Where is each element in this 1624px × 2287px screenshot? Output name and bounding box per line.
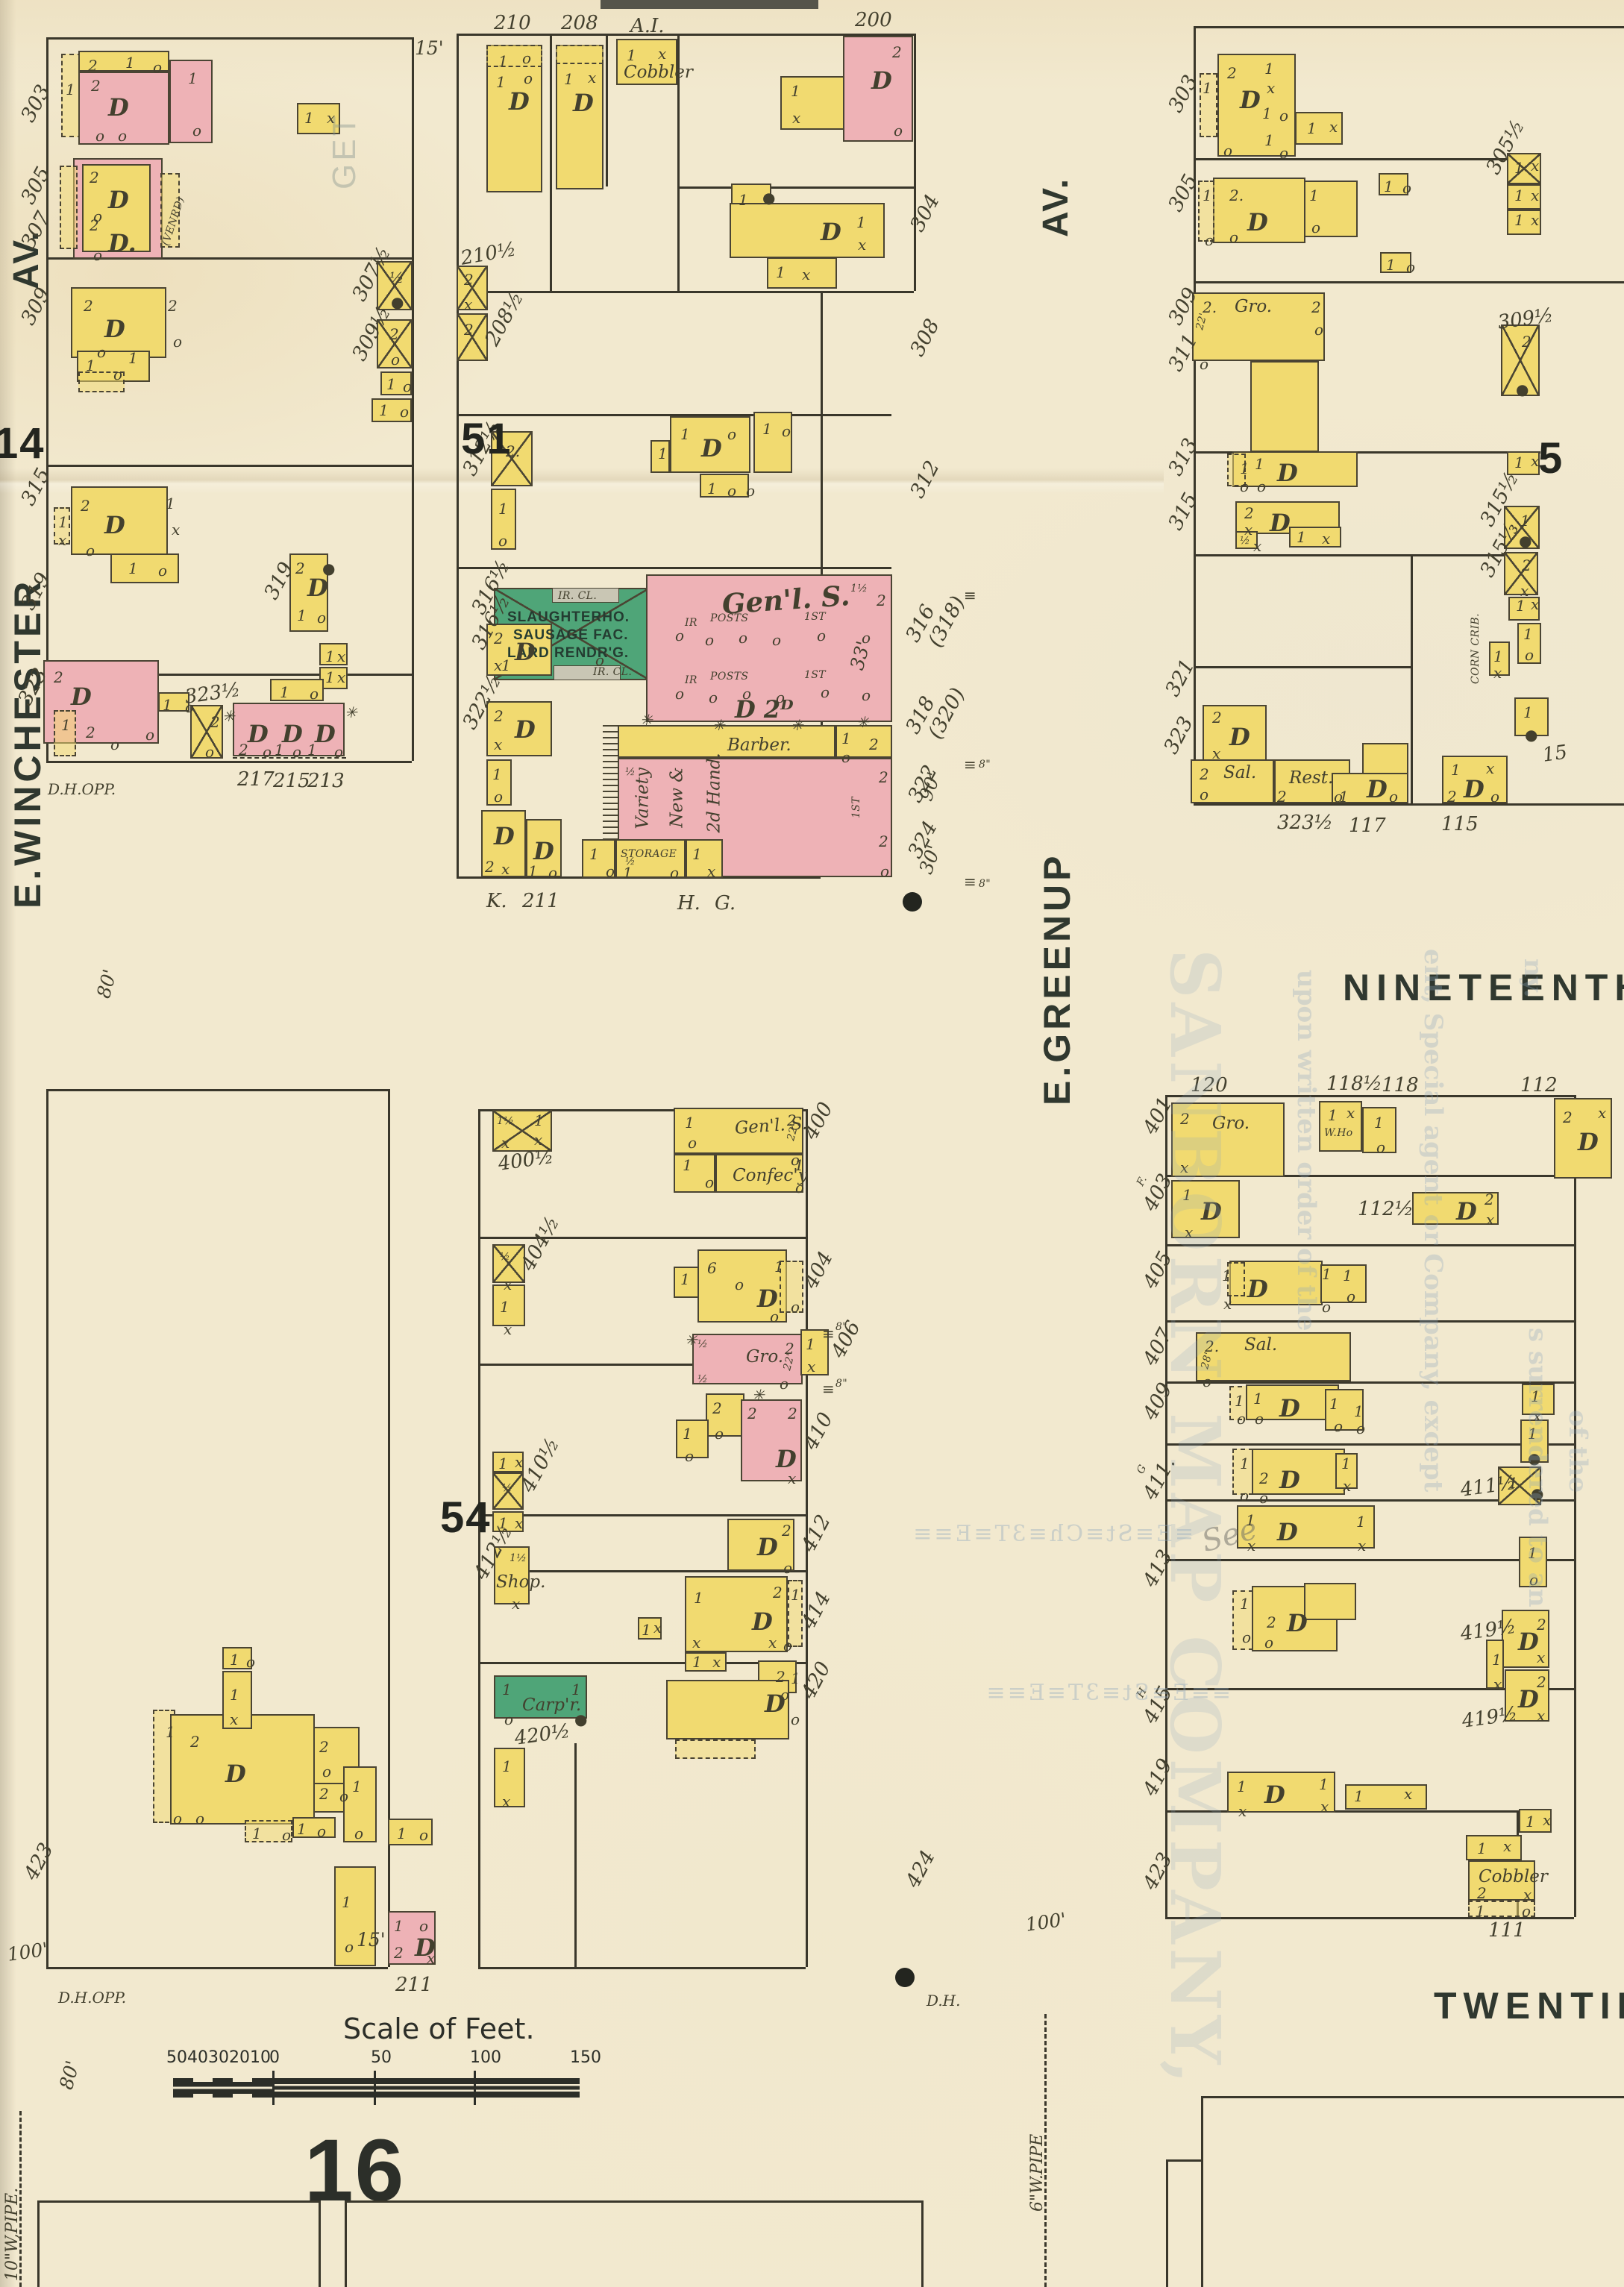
map-label-m: o <box>1257 479 1266 494</box>
map-label-m: o <box>192 123 201 138</box>
map-label-m: 1 <box>692 1654 702 1669</box>
map-label-m: 1 <box>1477 1841 1487 1856</box>
map-label-m: o <box>841 750 850 765</box>
map-label-m: x <box>768 1635 777 1650</box>
map-label-m: 1 <box>1514 455 1524 470</box>
map-label-m: 1 <box>776 265 786 280</box>
map-label-sn: 208½ <box>482 289 527 349</box>
watermark-text: of the <box>1565 1410 1590 1493</box>
map-label-t: G <box>1135 1463 1149 1475</box>
map-label-m: 1 <box>297 1822 307 1836</box>
map-label-use: Cobbler <box>1479 1869 1548 1886</box>
map-label-m: 2 <box>88 58 98 73</box>
map-label-m: 1 <box>534 1113 544 1128</box>
map-label-m: o <box>715 1426 724 1441</box>
map-label-m: o <box>595 653 604 668</box>
map-label-m: o <box>322 1764 331 1779</box>
map-label-m: 2 <box>84 298 93 313</box>
map-label-m: o <box>263 744 272 759</box>
map-label-m: x <box>504 1322 512 1337</box>
map-label-use: Gro. <box>746 1349 783 1366</box>
map-label-m: 1 <box>1492 1652 1502 1667</box>
map-label-m: o <box>688 1135 697 1150</box>
map-label-sn: 311 <box>1165 331 1201 374</box>
map-label-snh: G. <box>715 894 736 913</box>
map-label-m: 1 <box>1240 1596 1250 1611</box>
map-label-m: 2 <box>1259 1471 1269 1486</box>
map-label-t: 1½ <box>850 583 868 594</box>
map-label-m: 1 <box>61 718 71 732</box>
watermark-text: SANBORN MAP COMPANY, <box>1161 949 1229 2089</box>
map-label-m: o <box>1406 260 1415 274</box>
map-label-m: o <box>821 685 830 700</box>
map-label-m: 2 <box>90 218 99 233</box>
block-number: 51 <box>461 418 512 461</box>
map-label-m: 1 <box>623 865 633 880</box>
map-label-m: ● <box>574 1712 587 1727</box>
map-label-m: 1 <box>680 427 690 442</box>
map-label-m: 2 <box>168 298 178 313</box>
map-label-m: 1 <box>397 1826 407 1841</box>
lot-line <box>1194 554 1507 556</box>
map-label-m: 1 <box>685 1115 695 1130</box>
lot-line <box>1194 26 1196 803</box>
map-label-d: D <box>1240 88 1261 112</box>
map-label-m: 2 <box>54 670 63 685</box>
map-label-m: o <box>205 744 214 759</box>
map-label-m: o <box>1259 1490 1268 1505</box>
map-label-d: D <box>573 91 594 115</box>
map-label-m: 1 <box>498 54 508 69</box>
scale-tick: 150 <box>570 2048 601 2067</box>
map-label-t: 1ST <box>804 670 826 680</box>
map-label-m: 1 <box>1329 1396 1339 1411</box>
map-label-sn: 305 <box>1165 172 1201 215</box>
map-label-m: ✳ <box>685 1332 697 1347</box>
lot-line <box>921 2200 924 2287</box>
map-label-use: Rest. <box>1289 770 1333 787</box>
block-number: 5 <box>1538 437 1564 480</box>
map-label-m: 1 <box>642 1622 651 1637</box>
map-label-snh: 200 <box>855 10 892 30</box>
watermark-text: ≡≡E≡St≡3T≡E≡≡ <box>985 1682 1231 1704</box>
map-label-m: x <box>1520 583 1529 598</box>
map-label-m: o <box>1229 230 1238 245</box>
map-label-m: 6 <box>707 1261 717 1276</box>
map-label-use: Barber. <box>727 737 791 754</box>
map-label-m: o <box>1490 789 1499 804</box>
map-label-t: POSTS <box>710 613 748 624</box>
map-label-m: o <box>739 630 747 645</box>
map-label-m: x <box>1320 1799 1329 1814</box>
map-label-snh: 309½ <box>1496 306 1555 333</box>
map-label-use: Carp'r. <box>522 1697 581 1714</box>
water-pipe-10in-label: 10"W,PIPE. <box>3 2188 22 2281</box>
map-label-sn: 304 <box>907 192 943 235</box>
map-label-m: 1 <box>683 1426 692 1441</box>
map-label-m: o <box>705 633 714 647</box>
map-label-m: D.H. <box>927 1993 960 2008</box>
map-label-m: 2 <box>1485 1192 1494 1207</box>
lot-line <box>677 186 914 189</box>
map-label-m: 2 <box>1267 1615 1276 1630</box>
lot-line <box>914 34 916 291</box>
map-label-m: o <box>770 1309 779 1324</box>
map-label-t: IR. CL. <box>558 591 597 601</box>
map-label-m: 1 <box>492 767 502 782</box>
map-label-m: o <box>113 367 122 382</box>
watermark-text: s surrendered to an <box>1525 1328 1550 1607</box>
map-label-d: D <box>1277 1520 1298 1544</box>
map-label-d: D <box>515 718 536 741</box>
map-label-m: o <box>345 1939 354 1954</box>
map-label-dim: 15' <box>357 1930 386 1949</box>
map-label-dim: 100' <box>6 1940 49 1964</box>
map-label-m: 1 <box>304 110 314 125</box>
map-label-sn: 309 <box>18 285 54 328</box>
map-label-sn: 307 <box>18 209 54 252</box>
map-label-m: 1 <box>806 1337 815 1352</box>
map-label-m: 1 <box>1343 1268 1352 1283</box>
map-label-m: o <box>391 352 400 367</box>
map-label-dim: 80' <box>94 967 119 1000</box>
map-label-m: 1 <box>1354 1789 1364 1804</box>
map-label-d: D <box>1578 1130 1599 1154</box>
map-label-m: x <box>1486 761 1494 776</box>
map-label-m: o <box>419 1919 428 1933</box>
map-label-m: 1 <box>1384 179 1393 194</box>
street-label-twentieth: TWENTIETH <box>1434 1984 1624 2027</box>
map-label-m: 2 <box>91 78 101 93</box>
map-label-m: o <box>1205 233 1214 248</box>
map-label-m: 1 <box>1240 461 1250 476</box>
scale-tick: 10 <box>250 2048 271 2067</box>
map-label-m: ✳ <box>791 718 803 732</box>
map-label-sn: 423 <box>21 1840 57 1883</box>
map-label-m: 1 <box>1237 1779 1247 1794</box>
map-label-m: 1 <box>707 481 717 496</box>
map-label-m: 2 <box>90 170 99 185</box>
map-label-m: o <box>1402 181 1411 195</box>
map-label-sn: 400 <box>800 1099 836 1143</box>
map-label-m: x <box>501 1135 510 1150</box>
map-label-m: x <box>427 1951 435 1966</box>
block-number: 14 <box>0 422 46 465</box>
map-label-snh: 211 <box>395 1975 433 1995</box>
map-label-use: Sal. <box>1223 765 1256 782</box>
map-label-sn: 303 <box>18 82 54 125</box>
hydrant-dot <box>895 1968 915 1987</box>
map-label-m: x <box>658 46 666 61</box>
map-label-m: ✳ <box>752 1387 765 1402</box>
lot-line <box>37 2200 40 2287</box>
map-label-m: o <box>1200 357 1208 371</box>
fold-crease <box>0 468 1164 494</box>
map-label-m: 1 <box>683 1158 692 1173</box>
map-label-m: 1 <box>1246 1513 1255 1528</box>
scale-tick: 20 <box>229 2048 250 2067</box>
map-label-m: 1 <box>1319 1777 1329 1792</box>
map-label-m: 2 <box>712 1401 722 1416</box>
map-label-m: 1 <box>307 742 317 757</box>
map-label-m: o <box>727 483 736 498</box>
map-label-m: o <box>894 123 903 138</box>
map-label-m: o <box>419 1828 428 1842</box>
building-frame <box>1250 361 1319 452</box>
map-label-snh: 208 <box>561 13 598 33</box>
map-label-m: o <box>791 1712 800 1727</box>
map-label-m: x <box>515 1455 523 1469</box>
map-label-m: 1 <box>1307 121 1317 136</box>
map-label-m: 1 <box>1203 81 1212 95</box>
scale-division <box>474 2071 476 2105</box>
map-label-t: ½ <box>502 1483 512 1493</box>
map-label-m: 1 <box>528 864 538 879</box>
map-label-m: 2 <box>81 498 90 513</box>
map-label-m: 2 <box>1227 66 1237 81</box>
map-label-use: Shop. <box>496 1574 545 1591</box>
map-label-m: o <box>1200 787 1208 802</box>
map-label-m: o <box>670 865 679 880</box>
map-label-d: D <box>871 69 892 92</box>
map-label-t: ½ <box>697 1374 708 1384</box>
map-label-m: o <box>1346 1289 1355 1304</box>
map-label-use: New & <box>669 767 686 827</box>
map-label-m: x <box>1404 1786 1412 1801</box>
map-label-m: o <box>783 1560 792 1575</box>
map-label-snh: 211 <box>522 891 559 911</box>
map-label-m: 2 <box>86 725 95 740</box>
map-label-d: D <box>701 436 722 460</box>
map-label-m: 1 <box>1203 188 1212 203</box>
building-frame <box>110 553 179 583</box>
map-label-m: ≡ <box>964 874 976 889</box>
map-label-m: o <box>97 345 106 360</box>
block-number: 54 <box>440 1496 492 1540</box>
lot-line <box>46 1967 388 1969</box>
map-label-slb: SLAUGHTERHO. <box>507 610 630 624</box>
map-label-m: o <box>675 686 684 701</box>
map-label-m: 2. <box>1203 300 1217 315</box>
map-label-m: x <box>692 1635 700 1650</box>
map-label-m: o <box>1237 1411 1246 1426</box>
map-label-m: 1 <box>501 658 511 673</box>
map-label-m: 1 <box>794 1158 804 1173</box>
lot-line <box>1574 1095 1576 1917</box>
map-label-snh: 210 <box>494 13 531 33</box>
map-label-m: x <box>172 522 180 537</box>
map-label-m: x <box>1322 531 1330 546</box>
map-label-m: 1 <box>627 48 636 63</box>
map-label-d: D <box>1464 777 1485 801</box>
map-label-m: x <box>1537 1650 1545 1665</box>
map-label-m: 2 <box>1537 1675 1546 1690</box>
map-label-m: ≡ <box>822 1381 835 1396</box>
map-label-m: 2 <box>1200 767 1209 782</box>
map-label-d: D <box>1247 210 1268 234</box>
lot-line <box>478 1662 806 1664</box>
map-label-m: 2 <box>879 834 888 849</box>
map-label-sn: 420 <box>798 1659 834 1702</box>
scale-tick: 50 <box>371 2048 392 2067</box>
scale-tick: 50 <box>166 2048 187 2067</box>
map-label-m: 1 <box>1253 1391 1263 1406</box>
map-label-sn: 414 <box>798 1589 834 1632</box>
map-label-m: 1 <box>1520 513 1530 528</box>
map-label-m: o <box>1242 1630 1251 1645</box>
map-label-m: 1 <box>498 501 508 516</box>
map-label-d: D <box>1279 1468 1300 1492</box>
map-label-m: 2 <box>1477 1886 1487 1901</box>
map-label-t: POSTS <box>710 671 748 682</box>
map-label-m: ✳ <box>640 712 653 727</box>
map-label-m: 2 <box>1522 334 1531 349</box>
map-label-m: o <box>1223 143 1232 158</box>
map-label-m: 1 <box>680 1272 690 1287</box>
map-label-sn: 308 <box>907 316 943 360</box>
scale-segment <box>173 2078 193 2098</box>
map-label-m: x <box>534 1132 542 1147</box>
map-label-d: D <box>533 839 554 863</box>
scale-division <box>374 2071 376 2105</box>
map-label-m: 1 <box>252 1826 262 1841</box>
lot-line <box>478 1237 806 1239</box>
scale-segment <box>193 2078 213 2098</box>
map-label-m: 1 <box>275 742 284 757</box>
map-label-m: o <box>403 379 412 394</box>
lot-line <box>1166 2159 1201 2162</box>
watermark-text: ny. <box>1520 959 1546 997</box>
lot-line <box>46 761 412 763</box>
map-label-m: o <box>354 1826 363 1841</box>
map-label-d: D <box>104 513 125 537</box>
map-label-m: o <box>780 1376 789 1391</box>
map-label-m: x <box>58 533 66 548</box>
map-label-use: Variety <box>635 768 652 829</box>
map-label-sn: 315 <box>18 465 54 509</box>
lot-line <box>1194 281 1624 283</box>
lot-line <box>233 757 346 759</box>
map-label-d: D <box>1367 777 1388 801</box>
scale-segment <box>213 2078 233 2098</box>
map-label-m: x <box>1537 1708 1545 1723</box>
map-label-snh: K. <box>486 891 507 911</box>
building-frame <box>556 45 603 64</box>
map-label-m: o <box>1311 220 1320 235</box>
lot-line <box>319 2200 321 2287</box>
map-label-m: x <box>1531 158 1539 173</box>
map-label-m: 1 <box>86 358 95 373</box>
map-label-m: 1 <box>1526 1814 1535 1829</box>
map-label-m: 1 <box>1514 188 1524 203</box>
map-label-m: 1 <box>379 403 389 418</box>
building-frame <box>686 839 723 878</box>
map-label-m: x <box>807 1359 815 1374</box>
map-label-m: x <box>707 864 715 879</box>
map-label-m: 1 <box>128 561 138 576</box>
map-label-m: o <box>606 864 615 879</box>
scale-division <box>272 2071 275 2105</box>
map-label-m: x <box>1358 1538 1366 1553</box>
map-label-m: x <box>494 737 502 752</box>
map-label-m: o <box>817 628 826 643</box>
map-label-d: D <box>1518 1687 1539 1711</box>
map-label-m: 2 <box>239 742 248 757</box>
map-label-m: 1 <box>297 608 307 623</box>
map-label-m: 1 <box>163 697 172 712</box>
map-label-m: 2 <box>494 709 504 724</box>
map-label-m: 1 <box>1514 160 1524 175</box>
map-label-m: o <box>153 60 162 75</box>
map-label-d: D <box>752 1610 773 1634</box>
map-label-d: D <box>1229 725 1250 749</box>
map-label-m: o <box>735 1277 744 1292</box>
scale-bar: Scale of Feet. 5040302010050100150 <box>160 2013 623 2106</box>
map-label-m: ½ <box>389 270 404 285</box>
map-label-m: 1 <box>1523 627 1533 641</box>
lot-line <box>412 37 414 761</box>
map-label-snh: 213 <box>307 771 345 791</box>
map-label-m: 2 <box>295 561 305 576</box>
map-label-m: 1 <box>1341 1456 1351 1471</box>
map-label-d: D <box>104 317 125 341</box>
map-label-m: o <box>1279 108 1288 123</box>
map-label-m: 1 <box>841 731 851 746</box>
watermark-text: ≡E≡St≡Ch≡3T≡E≡≡ <box>911 1523 1194 1546</box>
map-label-m: 1 <box>1356 1514 1366 1529</box>
map-label-m: 1 <box>66 82 75 97</box>
map-label-m: o <box>246 1654 255 1669</box>
map-label-m: x <box>788 1471 796 1486</box>
map-label-m: o <box>86 543 95 558</box>
lot-line <box>37 2200 319 2203</box>
map-label-m: o <box>880 864 889 879</box>
map-label-m: ● <box>1519 533 1531 548</box>
map-label-snh: 215 <box>273 771 310 791</box>
map-label-snh: 420½ <box>513 1722 571 1748</box>
map-label-m: o <box>1525 647 1534 662</box>
map-label-dim: 15' <box>415 39 444 57</box>
map-label-use: Cobbler <box>624 64 693 81</box>
map-label-m: 1 <box>166 496 175 511</box>
map-label-snh: 419½ <box>1461 1704 1519 1731</box>
map-label-m: ✳ <box>856 715 869 730</box>
map-label-m: x <box>512 1596 520 1611</box>
map-label-m: 1 <box>1297 530 1306 545</box>
map-label-m: o <box>310 686 319 701</box>
map-label-m: 1 <box>1328 1108 1338 1123</box>
lot-line <box>457 34 459 876</box>
map-label-m: 2 <box>1537 1617 1546 1632</box>
scale-tick: 40 <box>187 2048 208 2067</box>
map-label-m: x <box>1493 1677 1502 1692</box>
map-label-m: o <box>746 483 755 498</box>
map-label-m: 1 <box>1354 1404 1364 1419</box>
map-label-t: F. <box>1135 1174 1149 1188</box>
map-label-d: D <box>757 1535 778 1559</box>
map-label-use: Gro. <box>1235 298 1272 316</box>
map-label-m: 2 <box>1563 1110 1573 1125</box>
map-label-m: 2 <box>190 1734 200 1749</box>
map-label-m: o <box>282 1828 291 1842</box>
map-label-m: 2 <box>747 1406 757 1421</box>
map-label-m: 2 <box>394 1945 404 1960</box>
map-label-gwm: GET <box>328 113 361 189</box>
map-label-m: 2 <box>776 1669 786 1684</box>
map-label-m: o <box>1314 322 1323 337</box>
map-label-d: D <box>1287 1611 1308 1635</box>
map-label-snh: 112 <box>1520 1076 1558 1095</box>
